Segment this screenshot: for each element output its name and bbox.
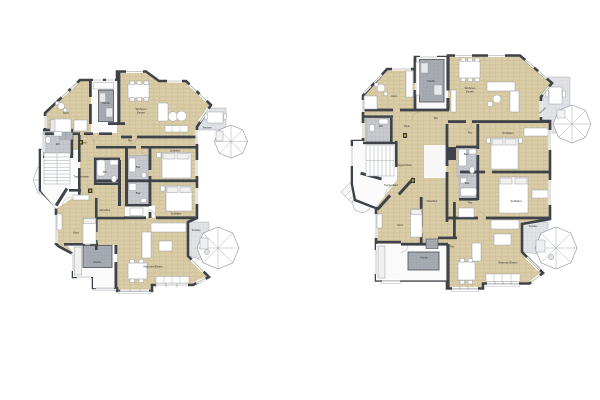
svg-text:Bad: Bad <box>465 182 470 185</box>
svg-text:Kind: Kind <box>73 230 79 234</box>
svg-text:Küche: Küche <box>93 260 101 264</box>
svg-text:Treppenhaus: Treppenhaus <box>73 175 89 179</box>
svg-text:Küche: Küche <box>420 256 428 260</box>
svg-text:WC: WC <box>56 143 60 146</box>
svg-text:Wohnen/Essen: Wohnen/Essen <box>498 261 518 265</box>
svg-text:Kind: Kind <box>391 94 397 98</box>
svg-text:Bad: Bad <box>464 153 469 156</box>
svg-text:Diele/Flur: Diele/Flur <box>100 209 111 212</box>
svg-text:Treppenhaus: Treppenhaus <box>384 184 399 187</box>
svg-text:Bad: Bad <box>136 166 141 169</box>
svg-text:Terrasse: Terrasse <box>202 127 212 130</box>
svg-text:Flur: Flur <box>450 246 454 249</box>
svg-text:Treppenhaus: Treppenhaus <box>396 163 412 167</box>
svg-text:Schlafen: Schlafen <box>170 149 181 153</box>
svg-text:Flur: Flur <box>468 132 472 135</box>
svg-text:Diele/Flur: Diele/Flur <box>427 200 438 203</box>
svg-text:WC: WC <box>379 125 383 128</box>
svg-text:Terrasse: Terrasse <box>528 225 538 228</box>
svg-text:Flur: Flur <box>468 202 472 205</box>
svg-text:Kind: Kind <box>397 223 403 227</box>
svg-text:Diele: Diele <box>404 125 410 128</box>
svg-text:Küche: Küche <box>427 79 435 83</box>
svg-text:Schlafen: Schlafen <box>171 212 182 216</box>
svg-text:Küche: Küche <box>102 101 110 105</box>
svg-text:Diele: Diele <box>81 141 87 144</box>
svg-text:Flur: Flur <box>128 140 132 143</box>
svg-text:Wohnen/Essen: Wohnen/Essen <box>143 265 163 269</box>
svg-text:Flur: Flur <box>434 117 438 120</box>
svg-text:Essen: Essen <box>466 90 474 94</box>
svg-text:Terrasse: Terrasse <box>191 229 201 232</box>
svg-text:WC: WC <box>103 171 107 174</box>
svg-text:Bad: Bad <box>136 192 141 195</box>
svg-text:Schlafen: Schlafen <box>510 199 522 203</box>
svg-text:Essen: Essen <box>137 111 145 115</box>
svg-text:Kind: Kind <box>63 111 69 115</box>
svg-text:Schlafen: Schlafen <box>502 131 514 135</box>
